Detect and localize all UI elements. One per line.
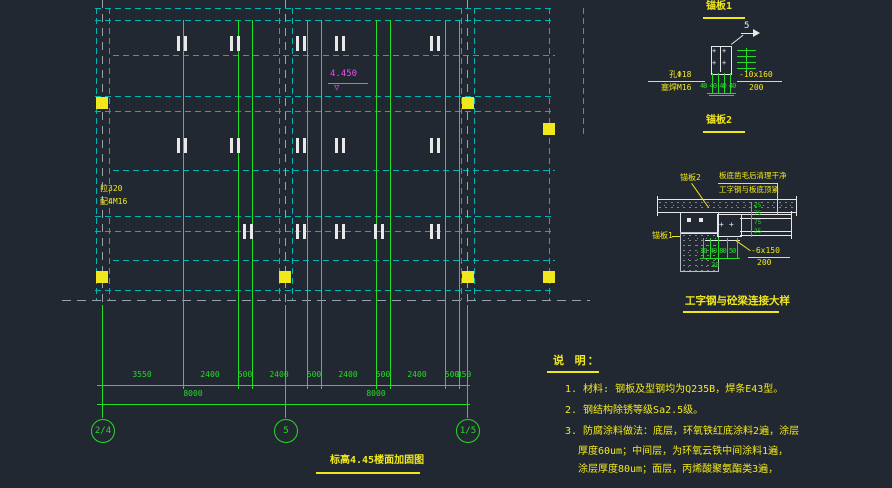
beam-dashed-line — [113, 170, 555, 171]
cad-canvas[interactable]: 4.450 ▽ 拉320 配4M16 3550 2400 500 2400 50… — [0, 0, 892, 488]
leader-line — [672, 236, 680, 237]
new-beam-line — [321, 20, 322, 385]
anchor-plate-2-outline — [680, 212, 719, 234]
dimension-tick — [102, 381, 103, 389]
connection-note-line2: 工字钢与板底顶紧 — [719, 186, 779, 194]
dimension-label: 25 — [754, 203, 761, 209]
dimension-tick — [390, 381, 391, 389]
plan-title-underline — [316, 472, 420, 474]
connection-note-line1: 板底凿毛后清理干净 — [719, 172, 787, 180]
dimension-tick — [307, 381, 308, 389]
dimension-tick — [459, 381, 460, 389]
dimension-label: 3550 — [132, 371, 151, 379]
grid-bubble: 2/4 — [91, 419, 115, 443]
new-beam-line — [252, 20, 253, 385]
leader-line — [731, 35, 743, 45]
beam-dashed-line — [95, 111, 555, 112]
dimension-label: 75 — [754, 211, 761, 217]
dimension-line — [700, 258, 740, 259]
anchor-bar-base-line — [709, 95, 734, 96]
slab-line — [657, 212, 797, 213]
slab-break-tick — [657, 196, 658, 216]
plate-size-label: -6x150 — [751, 247, 780, 255]
plan-title: 标高4.45楼面加固图 — [330, 456, 424, 466]
dimension-label: 8000 — [183, 390, 202, 398]
beam-dashed-line — [461, 8, 462, 300]
stud-pair — [296, 36, 306, 51]
dimension-label: 850 — [457, 371, 471, 379]
ibeam-flange-line — [740, 214, 792, 215]
dimension-label: 500 — [238, 371, 252, 379]
slab-break-tick — [796, 196, 797, 216]
detail-title: 锚板1 — [706, 2, 732, 12]
column-marker — [462, 97, 474, 109]
note-line: 2. 钢结构除锈等级Sa2.5级。 — [565, 406, 703, 416]
new-beam-line — [376, 20, 377, 385]
dimension-label: 20 — [711, 262, 719, 269]
ibeam-flange-line — [740, 231, 792, 232]
column-marker — [462, 271, 474, 283]
beam-tag-line1: 拉320 — [100, 185, 122, 193]
bolt-icon: + — [729, 221, 734, 229]
anchor-bolt-mark — [687, 218, 691, 222]
plate-width-label: 200 — [757, 259, 771, 267]
elevation-triangle-icon: ▽ — [334, 84, 339, 93]
grid-axis-line — [62, 300, 590, 301]
beam-dashed-line — [583, 8, 584, 135]
leader-line — [648, 81, 705, 82]
bolt-icon: + — [722, 48, 726, 55]
dimension-line — [751, 202, 752, 237]
detail-title-underline — [703, 17, 745, 19]
dimension-line — [97, 385, 470, 386]
bolt-icon: + — [719, 221, 724, 229]
dimension-tick — [102, 400, 103, 408]
dimension-label: 500 — [376, 371, 390, 379]
bolt-icon: + — [712, 60, 716, 67]
stud-pair — [430, 36, 440, 51]
anchor-bolt-mark — [699, 218, 703, 222]
stud-pair — [335, 224, 345, 239]
leader-line — [777, 184, 778, 215]
dimension-tick — [376, 381, 377, 389]
column-marker — [96, 271, 108, 283]
note-line: 1. 材料: 钢板及型钢均为Q235B，焊条E43型。 — [565, 385, 783, 395]
leader-line — [737, 81, 782, 82]
dimension-tick — [183, 381, 184, 389]
new-beam-line — [390, 20, 391, 385]
dimension-label: 8000 — [366, 390, 385, 398]
connection-detail-title: 工字钢与砼梁连接大样 — [685, 296, 790, 307]
dimension-line — [97, 404, 470, 405]
column-marker — [279, 271, 291, 283]
stud-pair — [374, 224, 384, 239]
column-marker — [543, 123, 555, 135]
stud-pair — [296, 224, 306, 239]
beam-dashed-line — [292, 8, 293, 300]
stud-pair — [177, 138, 187, 153]
dimension-tick — [238, 381, 239, 389]
new-beam-line — [459, 20, 460, 385]
new-beam-line — [238, 20, 239, 385]
grid-bubble: 1/5 — [456, 419, 480, 443]
beam-dashed-line — [279, 8, 280, 300]
column-marker — [543, 271, 555, 283]
dimension-label: 2400 — [200, 371, 219, 379]
bar-spacing-label: 40 40 40 40 — [700, 83, 735, 90]
dimension-tick — [321, 381, 322, 389]
notes-heading: 说 明： — [553, 355, 601, 366]
weld-run-line — [746, 48, 747, 72]
beam-dashed-line — [95, 216, 555, 217]
ibeam-end-tick — [791, 211, 792, 239]
ibeam-flange-line — [740, 218, 792, 219]
dimension-tick — [467, 381, 468, 389]
bolt-icon: + — [722, 60, 726, 67]
dimension-label: 2400 — [338, 371, 357, 379]
plug-weld-label: 塞焊M16 — [661, 84, 691, 92]
new-beam-line — [183, 20, 184, 385]
concrete-slab-hatch — [657, 200, 797, 212]
stud-pair — [335, 138, 345, 153]
beam-dashed-line — [95, 290, 555, 291]
dimension-label: 10 40 80 50 — [700, 248, 735, 255]
dimension-tick — [252, 381, 253, 389]
grid-bubble: 5 — [274, 419, 298, 443]
stud-pair — [230, 36, 240, 51]
stud-pair — [230, 138, 240, 153]
anchor-plate-2-underline — [703, 131, 745, 133]
note-line: 3. 防腐涂料做法：底层，环氧铁红底涂料2遍，涂层 — [565, 427, 799, 437]
connection-title-underline — [683, 311, 779, 313]
stud-pair — [243, 224, 253, 239]
beam-dashed-line — [113, 260, 555, 261]
bolt-icon: + — [712, 48, 716, 55]
beam-dashed-line — [95, 20, 555, 21]
beam-dashed-line — [96, 8, 97, 300]
stud-pair — [335, 36, 345, 51]
note-underline — [718, 183, 778, 184]
anchor2-ref-label: 锚板2 — [680, 174, 701, 182]
plate-width-label: 200 — [749, 84, 763, 92]
notes-heading-underline — [547, 371, 599, 373]
weld-flag-icon — [753, 29, 760, 37]
dimension-label: 500 — [307, 371, 321, 379]
hole-label: 孔Φ18 — [669, 71, 691, 79]
column-marker — [96, 97, 108, 109]
plate-size-label: -10x160 — [739, 71, 773, 79]
beam-dashed-line — [109, 8, 110, 300]
note-line: 厚度60um；中间层，为环氧云铁中间涂料1遍， — [578, 447, 788, 457]
anchor-plate-2-title: 锚板2 — [706, 116, 732, 126]
beam-dashed-line — [95, 96, 555, 97]
beam-dashed-line — [113, 55, 555, 56]
plate-center-line — [720, 47, 721, 72]
dimension-label: 2400 — [407, 371, 426, 379]
beam-dashed-line — [95, 231, 555, 232]
stud-pair — [296, 138, 306, 153]
slab-line — [657, 199, 797, 200]
beam-dashed-line — [95, 8, 555, 9]
anchor1-ref-label: 锚板1 — [652, 232, 673, 240]
weld-size-label: 5 — [744, 22, 749, 31]
new-beam-line — [307, 20, 308, 385]
beam-dashed-line — [549, 8, 550, 300]
beam-dashed-line — [474, 8, 475, 300]
dimension-label: 2400 — [269, 371, 288, 379]
beam-tag-line2: 配4M16 — [100, 198, 127, 206]
dimension-tick — [445, 381, 446, 389]
dimension-label: 75 — [754, 220, 761, 226]
note-line: 涂层厚度80um；面层，丙烯酸聚氨酯类3遍， — [578, 465, 778, 475]
elevation-label: 4.450 — [330, 70, 357, 79]
ibeam-flange-line — [740, 235, 792, 236]
dimension-label: 25 — [754, 229, 761, 235]
new-beam-line — [445, 20, 446, 385]
anchor-bar-base-line — [707, 93, 736, 94]
stud-pair — [177, 36, 187, 51]
stud-pair — [430, 138, 440, 153]
dimension-tick — [467, 400, 468, 408]
dimension-tick — [285, 400, 286, 408]
stud-pair — [430, 224, 440, 239]
